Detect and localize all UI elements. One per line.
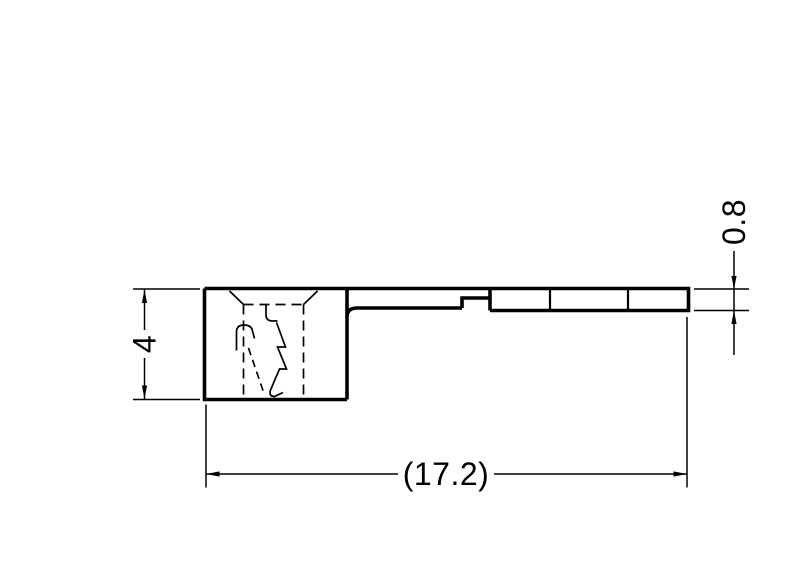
thickness-arrow-down	[731, 276, 736, 289]
chamfer-left-line	[230, 291, 244, 305]
drawing-canvas: 4 0.8 (17.2)	[0, 0, 800, 576]
hidden-detail-lines	[230, 291, 318, 398]
dimension-length: (17.2)	[206, 317, 687, 492]
height-arrow-down	[142, 386, 147, 400]
strip-step	[462, 298, 490, 308]
length-arrow-right	[674, 471, 688, 476]
dimension-thickness: 0.8	[694, 199, 752, 355]
height-arrow-up	[142, 290, 147, 304]
spring-arch-line	[237, 325, 255, 351]
thickness-dim-label: 0.8	[716, 199, 752, 245]
chamfer-right-line	[304, 291, 318, 305]
thickness-arrow-up	[731, 311, 736, 325]
length-arrow-left	[206, 471, 220, 476]
length-dim-label: (17.2)	[403, 456, 490, 492]
technical-drawing: 4 0.8 (17.2)	[0, 0, 800, 576]
spring-zigzag-line	[270, 323, 287, 397]
spring-hook-line	[266, 305, 278, 322]
hidden-diagonal-line	[249, 348, 264, 392]
arm-bottom-fillet	[347, 308, 462, 316]
height-dim-label: 4	[127, 335, 163, 353]
dimension-height: 4	[127, 289, 200, 400]
